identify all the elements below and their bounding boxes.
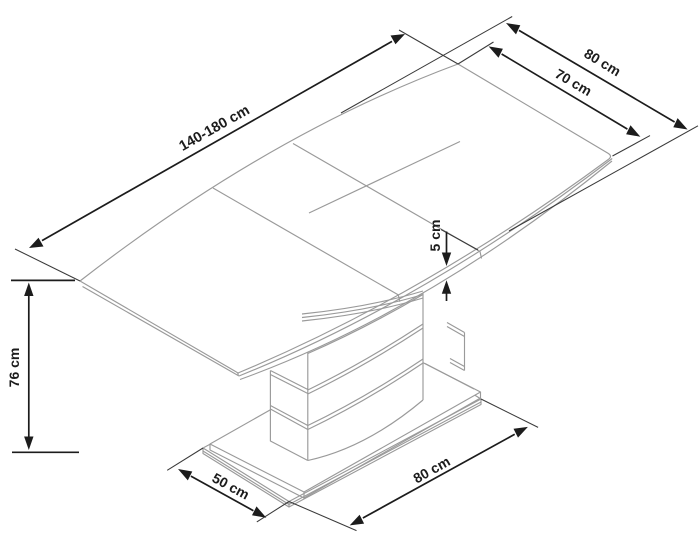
svg-text:76 cm: 76 cm — [6, 348, 22, 388]
svg-text:5 cm: 5 cm — [427, 220, 443, 252]
